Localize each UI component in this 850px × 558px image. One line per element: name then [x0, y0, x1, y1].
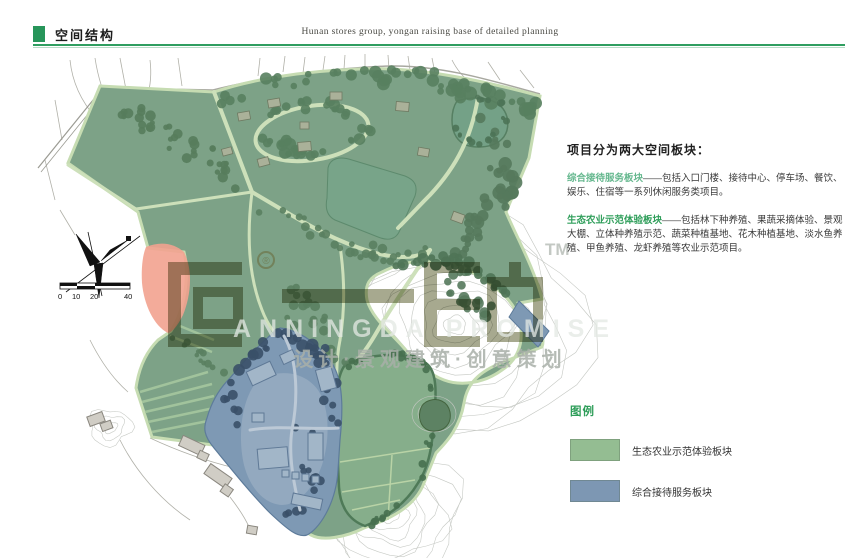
tm-mark: TM	[545, 240, 570, 259]
block-dash: ——	[662, 215, 681, 226]
description-block-agriculture: 生态农业示范体验板块——包括林下种养殖、果蔬采摘体验、景观大棚、立体种养殖示范、…	[567, 214, 845, 257]
scale-label: 20	[90, 292, 98, 301]
scale-bar: 0 10 20 40	[58, 283, 132, 301]
scale-label: 0	[58, 292, 62, 301]
block-lead: 综合接待服务板块	[567, 173, 643, 184]
description-panel: 项目分为两大空间板块： 综合接待服务板块——包括入口门楼、接待中心、停车场、餐饮…	[567, 141, 845, 269]
header-rule	[33, 44, 845, 46]
legend-swatch-blue	[570, 480, 620, 502]
page-subtitle: Hunan stores group, yongan raising base …	[240, 27, 620, 37]
description-heading: 项目分为两大空间板块：	[567, 141, 845, 158]
watermark-tagline: 设计·景观建筑·创意策划	[293, 347, 566, 371]
header-rule-light	[33, 47, 845, 48]
reg-mark: ®	[262, 256, 270, 267]
legend-label: 生态农业示范体验板块	[632, 443, 732, 458]
block-dash: ——	[643, 173, 662, 184]
southeast-field	[336, 355, 436, 526]
scale-label: 10	[72, 292, 80, 301]
description-block-reception: 综合接待服务板块——包括入口门楼、接待中心、停车场、餐饮、娱乐、住宿等一系列休闲…	[567, 172, 845, 201]
watermark-latin: ANNINGDA PROMISE	[233, 315, 617, 343]
legend-item: 综合接待服务板块	[570, 480, 732, 502]
legend-item: 生态农业示范体验板块	[570, 439, 732, 461]
block-lead: 生态农业示范体验板块	[567, 215, 662, 226]
legend: 图例 生态农业示范体验板块 综合接待服务板块	[570, 403, 732, 521]
page-header: 空间结构 Hunan stores group, yongan raising …	[0, 0, 850, 48]
legend-swatch-green	[570, 439, 620, 461]
page: ® TM ANNINGDA PROMISE 设计·景观建筑·创意策划 0 10 …	[0, 0, 850, 558]
legend-title: 图例	[570, 403, 732, 419]
scale-label: 40	[124, 292, 132, 301]
header-square-icon	[33, 26, 45, 42]
page-title: 空间结构	[55, 25, 115, 44]
legend-label: 综合接待服务板块	[632, 484, 712, 499]
